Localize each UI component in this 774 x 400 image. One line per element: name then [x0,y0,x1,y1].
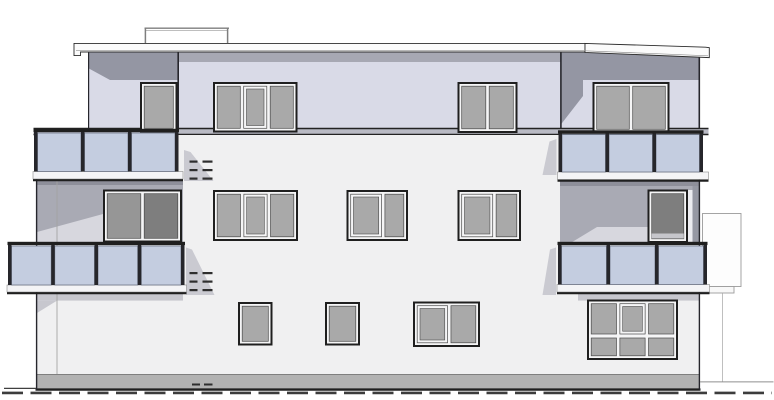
balcony-upper-right-glass-panel [562,135,606,173]
balcony-lower-right-post [607,244,611,285]
window-ground-small-1 [238,302,273,346]
window-ground-small-2 [325,302,360,346]
side-screen-right [703,214,742,287]
balcony-lower-left-glass-panel [55,246,95,285]
balcony-upper-right-post [653,132,657,172]
window-top-left-triple [213,82,298,133]
balcony-lower-right-handrail [558,242,708,245]
balcony-upper-left [33,129,183,180]
balcony-lower-left-post [51,244,55,285]
door-mid-right-balcony [648,190,689,244]
balcony-lower-right-glass-panel [562,246,607,285]
balcony-upper-right-handrail [558,130,704,133]
balcony-upper-right-glass-panel [656,135,700,173]
elevation-drawing [0,0,774,400]
balcony-upper-left-glass-panel [38,133,82,172]
window-ground-large [587,300,678,361]
roof-shadow-band [179,52,561,62]
balcony-upper-left-post [34,131,38,172]
balcony-upper-right-post [606,132,610,172]
elevation-canvas [0,0,774,400]
balcony-lower-right-post [655,244,659,285]
window-top-mid-double [458,82,518,133]
balcony-upper-left-post [128,131,132,172]
balcony-upper-left-post [81,131,85,172]
balcony-lower-left-post [181,244,185,285]
balcony-upper-right [558,130,709,180]
window-top-right-double [593,82,670,134]
recess-right-pier [688,190,693,243]
balcony-lower-left-post [8,244,12,285]
window-mid-double-a [347,190,409,241]
plinth-band [36,374,700,389]
balcony-upper-right-post [559,132,563,172]
balcony-upper-left-glass-panel [132,133,176,172]
balcony-lower-right-post [558,244,562,285]
balcony-upper-left-handrail [34,129,180,132]
balcony-lower-right-glass-panel [659,246,704,285]
window-mid-double-b [458,190,522,241]
window-ground-double [413,302,480,348]
balcony-upper-left-glass-panel [85,133,129,172]
balcony-upper-left-post [175,131,179,172]
balcony-lower-right-post [704,244,708,285]
balcony-upper-right-post [700,132,704,172]
balcony-lower-left-post [95,244,99,285]
balcony-lower-left-glass-panel [141,246,181,285]
balcony-lower-left-glass-panel [12,246,52,285]
balcony-lower-left-glass-panel [98,246,138,285]
balcony-lower-right-glass-panel [610,246,655,285]
window-top-left-single [140,82,178,133]
balcony-lower-right [557,242,710,293]
balcony-lower-left-post [138,244,142,285]
window-mid-triple [213,190,298,241]
balcony-lower-left-handrail [8,242,186,245]
door-mid-left-balcony [103,190,182,243]
balcony-upper-right-glass-panel [609,135,653,173]
balcony-lower-left [7,242,187,293]
